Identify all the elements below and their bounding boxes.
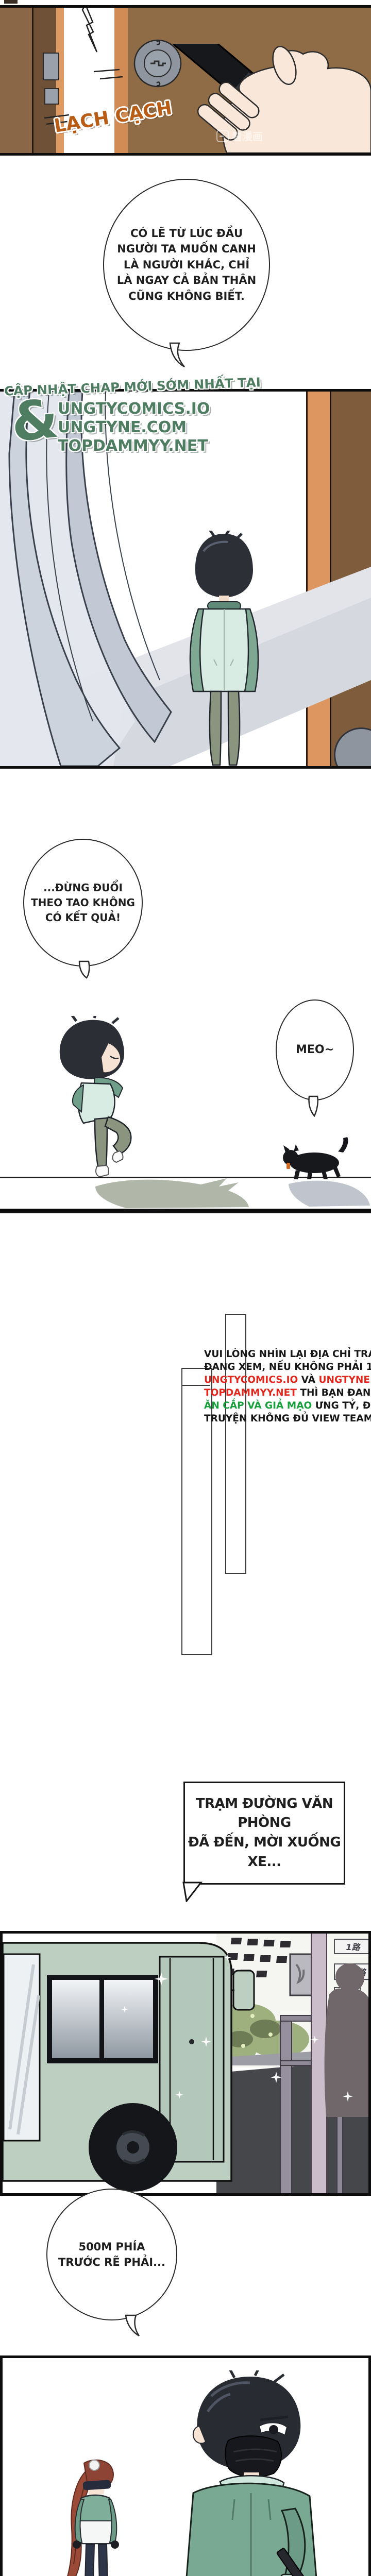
announcement-line: ĐÃ ĐẾN, MỜI XUỐNG XE... xyxy=(185,1833,344,1872)
bubble1-line: CŨNG KHÔNG BIẾT. xyxy=(128,289,245,304)
bubble2-line: THEO TAO KHÔNG xyxy=(31,895,135,910)
speech-bubble-dont-follow: ...ĐỪNG ĐUỔI THEO TAO KHÔNG CÓ KẾT QUẢ! xyxy=(23,839,143,967)
notice-line-2: ĐANG XEM, NẾU KHÔNG PHẢI 1 TRONG 3 WEB xyxy=(204,1361,371,1374)
bubble1-line: CÓ LẼ TỪ LÚC ĐẦU xyxy=(130,226,243,241)
banner-ampersand: & xyxy=(9,392,61,450)
notice-line-3: UNGTYCOMICS.IO VÀ UNGTYNE.COM VÀ xyxy=(204,1374,371,1386)
route-sign-1-label: 1路 xyxy=(346,1940,360,1953)
notice-warning-green: ĂN CẮP VÀ GIẢ MẠO xyxy=(204,1400,312,1411)
bubble2-tail xyxy=(76,960,95,979)
bubble3-tail xyxy=(305,1095,323,1117)
kuaikan-watermark-panel1: 看漫画 xyxy=(216,128,263,143)
speech-bubble-500m: 500M PHÍA TRƯỚC RẼ PHẢI... xyxy=(46,2189,177,2320)
flash-bolt-icon xyxy=(71,5,104,61)
bubble2-line: ...ĐỪNG ĐUỔI xyxy=(43,880,123,895)
announcement-line: TRẠM ĐƯỜNG VĂN PHÒNG xyxy=(185,1794,344,1833)
person-silhouette xyxy=(318,1962,371,2117)
section-divider-bar xyxy=(0,1209,371,1213)
bubble5-tail xyxy=(123,2314,143,2337)
notice-text: VÀ xyxy=(298,1375,318,1385)
route-sign-1: 1路 xyxy=(334,1939,371,1954)
chibi-boy-walking xyxy=(45,1016,154,1186)
railing-post xyxy=(280,2015,292,2195)
top-left-art-sliver xyxy=(4,0,18,4)
notice-line-6: TRUYỆN KHÔNG ĐỦ VIEW TEAM SẼ NGỪNG DỊCH. xyxy=(204,1412,371,1425)
hinge-plate-lower xyxy=(44,88,59,105)
bubble1-tail xyxy=(166,342,189,369)
notice-site-red: TOPDAMMYY.NET xyxy=(204,1387,297,1398)
banner-site-3: TOPDAMMYY.NET xyxy=(58,437,208,455)
announcement-tail xyxy=(181,1882,205,1902)
bubble1-line: LÀ NGAY CẢ BẢN THÂN xyxy=(117,273,256,288)
bubble1-line: LÀ NGƯỜI KHÁC, CHỈ xyxy=(124,257,249,273)
panel-bus-stop: 1路 618路 11路 xyxy=(0,1931,371,2196)
notice-line-1: VUI LÒNG NHÌN LẠI ĐỊA CHỈ TRANG WEB BẠN xyxy=(204,1348,371,1361)
banner-site-1: UNGTYCOMICS.IO xyxy=(58,400,210,418)
speech-bubble-meo: MEO~ xyxy=(276,999,354,1100)
bubble5-line: TRƯỚC RẼ PHẢI... xyxy=(58,2255,165,2270)
ground-line xyxy=(0,1177,371,1178)
hinge-plate-upper xyxy=(43,53,59,80)
door-dark-strip xyxy=(33,8,56,153)
bubble1-line: NGƯỜI TA MUỐN CANH xyxy=(117,241,256,257)
notice-site-red: UNGTYCOMICS.IO xyxy=(204,1375,298,1385)
webtoon-page: LẠCH CẠCH 看漫画 CÓ LẼ TỪ LÚC ĐẦU NGƯỜI TA … xyxy=(0,0,371,2576)
banner-site-2: UNGTYNE.COM xyxy=(58,418,187,436)
girl-red-ponytail xyxy=(48,2456,130,2576)
rattle-lines-icon xyxy=(93,69,124,82)
boy-mask-phone xyxy=(173,2370,327,2576)
notice-text: ƯNG TỶ, ĐỌC Ở WEB REUP xyxy=(312,1400,371,1411)
notice-text: THÌ BẠN ĐANG ĐỌC Ở WEB xyxy=(297,1387,371,1398)
bus-announcement-box: TRẠM ĐƯỜNG VĂN PHÒNG ĐÃ ĐẾN, MỜI XUỐNG X… xyxy=(183,1782,345,1885)
bubble3-line: MEO~ xyxy=(296,1042,334,1058)
mint-bus xyxy=(3,1934,260,2196)
black-cat-walking xyxy=(282,1136,352,1180)
cat-shadow xyxy=(289,1179,371,1210)
bubble5-line: 500M PHÍA xyxy=(78,2239,145,2255)
chibi-boy-shadow xyxy=(95,1177,250,1210)
notice-line-5: ĂN CẮP VÀ GIẢ MẠO ƯNG TỶ, ĐỌC Ở WEB REUP xyxy=(204,1399,371,1412)
panel-characters xyxy=(0,2355,371,2576)
door-left-column xyxy=(0,8,32,153)
anti-piracy-notice: VUI LÒNG NHÌN LẠI ĐỊA CHỈ TRANG WEB BẠN … xyxy=(204,1348,371,1425)
notice-site-red: UNGTYNE.COM xyxy=(318,1375,371,1385)
kuaikan-watermark-text: 看漫画 xyxy=(232,128,263,143)
panel-door-lock: LẠCH CẠCH 看漫画 xyxy=(0,5,371,156)
notice-line-4: TOPDAMMYY.NET THÌ BẠN ĐANG ĐỌC Ở WEB xyxy=(204,1386,371,1399)
kuaikan-app-icon xyxy=(216,130,229,142)
boy-standing-rear xyxy=(183,531,265,766)
speech-bubble-intro: CÓ LẼ TỪ LÚC ĐẦU NGƯỜI TA MUỐN CANH LÀ N… xyxy=(103,179,270,351)
bubble2-line: CÓ KẾT QUẢ! xyxy=(45,910,121,925)
